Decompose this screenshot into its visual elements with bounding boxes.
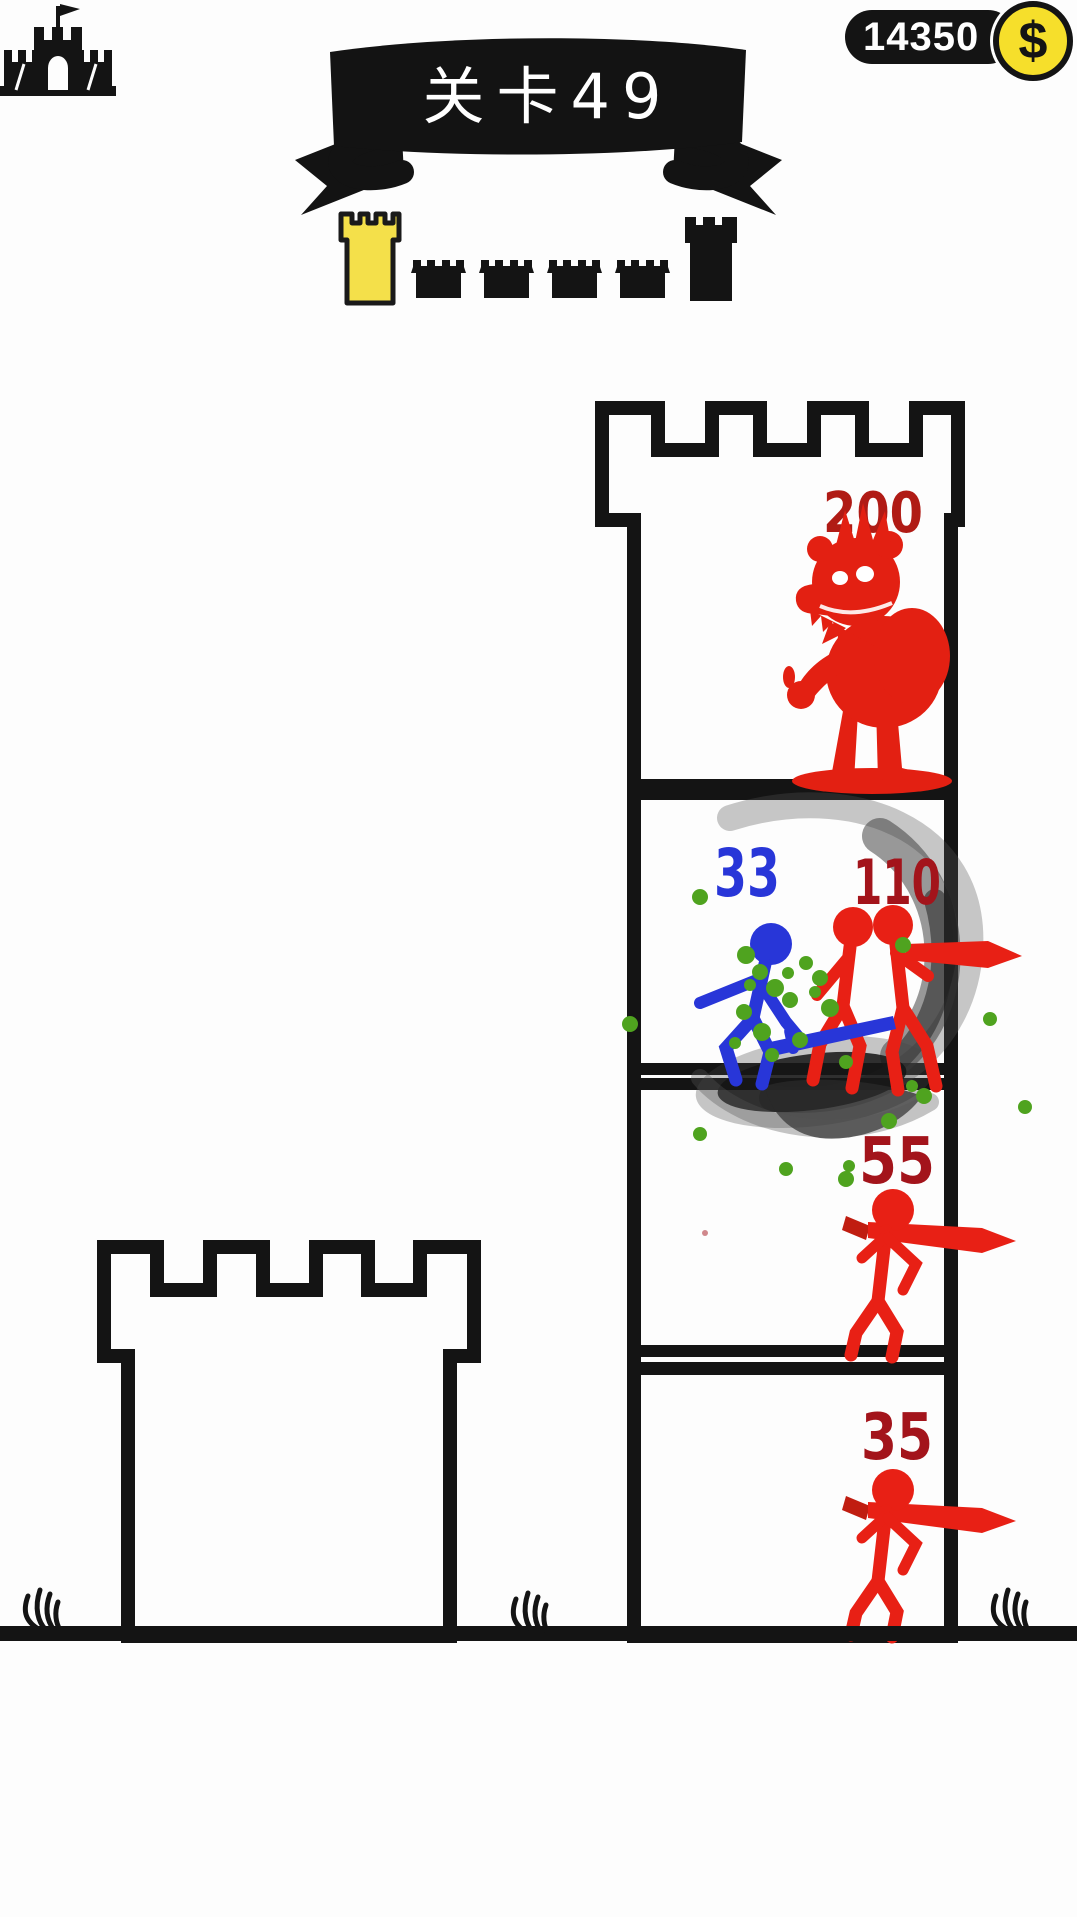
- dollar-symbol: $: [1019, 11, 1048, 71]
- coin-icon[interactable]: $: [993, 1, 1073, 81]
- grass-icon: [993, 1590, 1028, 1630]
- blue-attacker-head: [750, 923, 792, 965]
- attacker-hp-label: 33: [714, 835, 780, 912]
- castle-stage-icon: [615, 260, 670, 298]
- boss-hp-label: 200: [823, 481, 923, 546]
- level-banner: 关卡49: [295, 38, 782, 215]
- boss-eye: [832, 571, 848, 585]
- boss-eye: [856, 566, 874, 582]
- floor-separator: [630, 1362, 955, 1375]
- level-progress-bar: [341, 214, 737, 303]
- floor-separator: [630, 1345, 955, 1357]
- stage-castle-icons: [411, 260, 670, 298]
- castle-menu-icon[interactable]: [0, 4, 116, 96]
- coin-count: 14350: [863, 15, 979, 60]
- battle-scene: 关卡49: [0, 0, 1077, 1917]
- game-screen: 关卡49: [0, 0, 1077, 1917]
- castle-door: [48, 56, 68, 90]
- castle-stage-icon: [479, 260, 534, 298]
- defender-hp-label: 35: [861, 1401, 933, 1475]
- castle-stage-icon: [547, 260, 602, 298]
- level-title: 关卡49: [423, 60, 674, 133]
- grass-icon: [513, 1593, 548, 1633]
- current-level-tower-icon: [341, 214, 399, 303]
- castle-stage-icon: [411, 260, 466, 298]
- player-castle[interactable]: [104, 1247, 474, 1636]
- final-boss-tower-icon: [685, 217, 737, 301]
- coin-counter[interactable]: 14350: [845, 10, 1015, 64]
- grass-icon: [25, 1590, 60, 1630]
- red-fighter-head: [833, 907, 873, 947]
- defender-hp-label: 55: [859, 1125, 935, 1199]
- blood-speck: [702, 1230, 708, 1236]
